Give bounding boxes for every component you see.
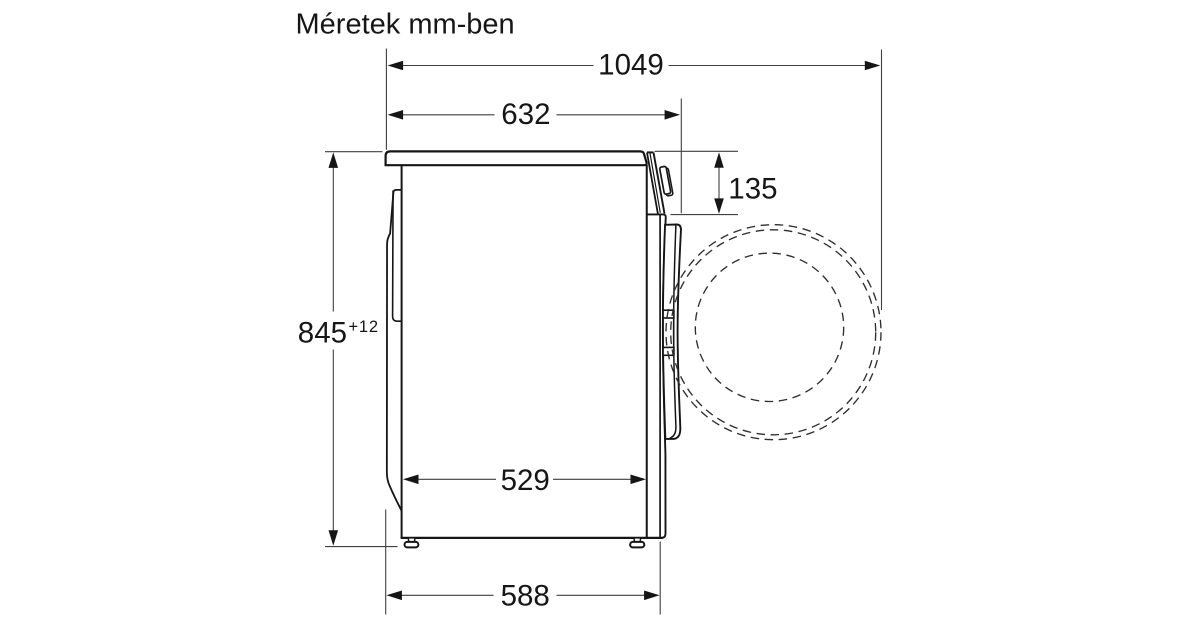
svg-text:135: 135: [728, 173, 777, 206]
svg-text:Méretek mm-ben: Méretek mm-ben: [296, 9, 515, 41]
svg-text:588: 588: [501, 580, 550, 613]
svg-text:529: 529: [501, 464, 550, 497]
svg-text:632: 632: [501, 98, 550, 131]
svg-text:845: 845: [298, 316, 347, 349]
svg-text:+12: +12: [349, 318, 379, 336]
svg-text:1049: 1049: [598, 49, 664, 82]
